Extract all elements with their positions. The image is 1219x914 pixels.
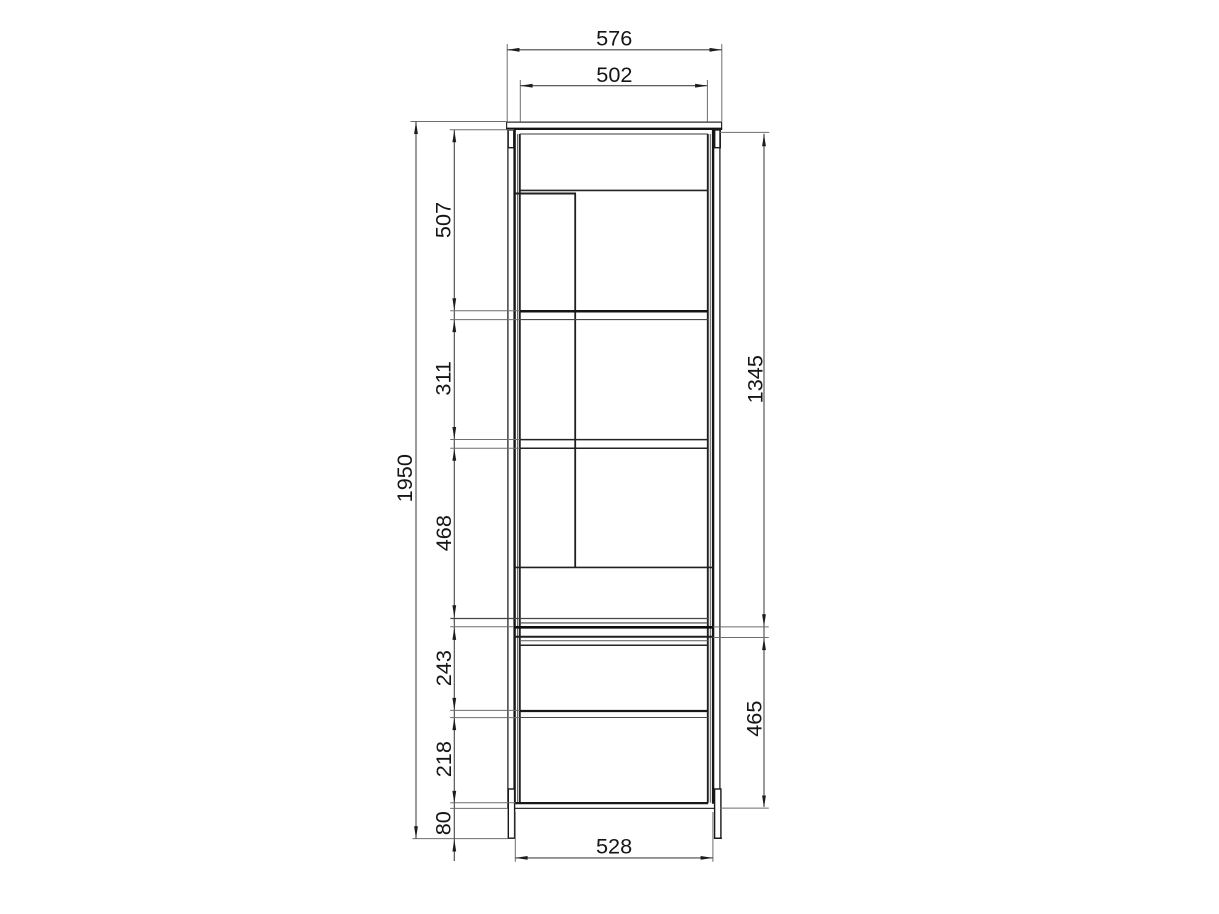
svg-text:507: 507 <box>430 202 455 238</box>
svg-text:80: 80 <box>430 811 455 835</box>
svg-text:576: 576 <box>596 26 632 51</box>
svg-text:1345: 1345 <box>743 355 768 403</box>
svg-text:218: 218 <box>431 741 456 777</box>
svg-text:468: 468 <box>431 515 456 551</box>
svg-text:465: 465 <box>742 701 767 737</box>
svg-text:502: 502 <box>596 62 632 87</box>
svg-text:528: 528 <box>596 834 632 859</box>
svg-text:243: 243 <box>431 650 456 686</box>
svg-text:1950: 1950 <box>392 454 417 502</box>
svg-text:311: 311 <box>430 361 455 396</box>
